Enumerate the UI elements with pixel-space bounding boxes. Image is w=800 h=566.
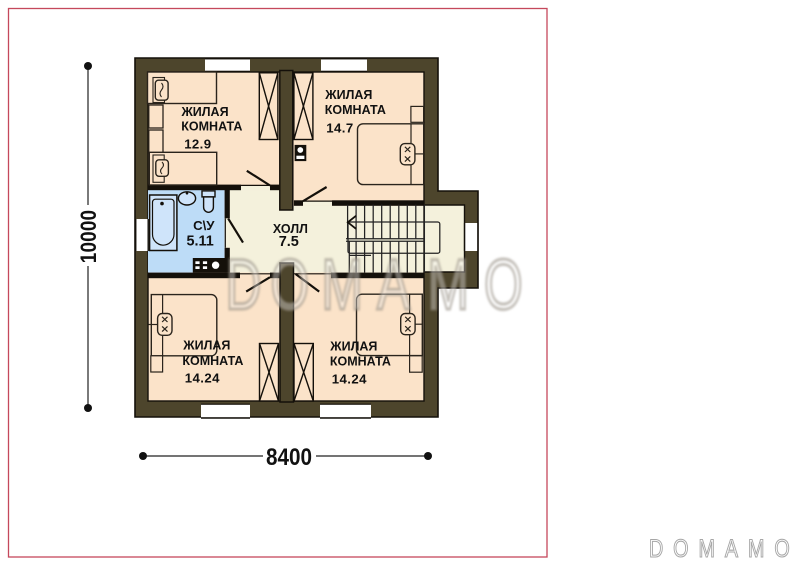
svg-text:ЖИЛАЯ: ЖИЛАЯ	[324, 88, 372, 102]
svg-text:14.7: 14.7	[326, 121, 353, 136]
svg-text:D: D	[226, 245, 262, 324]
svg-text:ЖИЛАЯ: ЖИЛАЯ	[329, 340, 377, 354]
svg-text:С\У: С\У	[193, 218, 215, 233]
svg-text:10000: 10000	[77, 210, 102, 264]
svg-text:12.9: 12.9	[184, 137, 211, 152]
svg-text:8400: 8400	[266, 443, 312, 470]
svg-text:ЖИЛАЯ: ЖИЛАЯ	[182, 339, 230, 353]
svg-text:O: O	[271, 245, 310, 324]
svg-text:M: M	[428, 245, 469, 324]
svg-text:КОМНАТА: КОМНАТА	[182, 354, 243, 368]
svg-text:M: M	[322, 245, 363, 324]
svg-text:A: A	[377, 245, 410, 324]
svg-text:DOMAMO: DOMAMO	[649, 535, 800, 563]
svg-text:O: O	[484, 245, 523, 324]
svg-text:КОМНАТА: КОМНАТА	[330, 355, 391, 369]
svg-text:14.24: 14.24	[185, 371, 220, 386]
svg-text:КОМНАТА: КОМНАТА	[325, 103, 386, 117]
svg-text:14.24: 14.24	[332, 372, 367, 387]
svg-text:КОМНАТА: КОМНАТА	[181, 120, 242, 134]
svg-text:5.11: 5.11	[186, 233, 213, 249]
svg-text:ЖИЛАЯ: ЖИЛАЯ	[181, 105, 229, 119]
